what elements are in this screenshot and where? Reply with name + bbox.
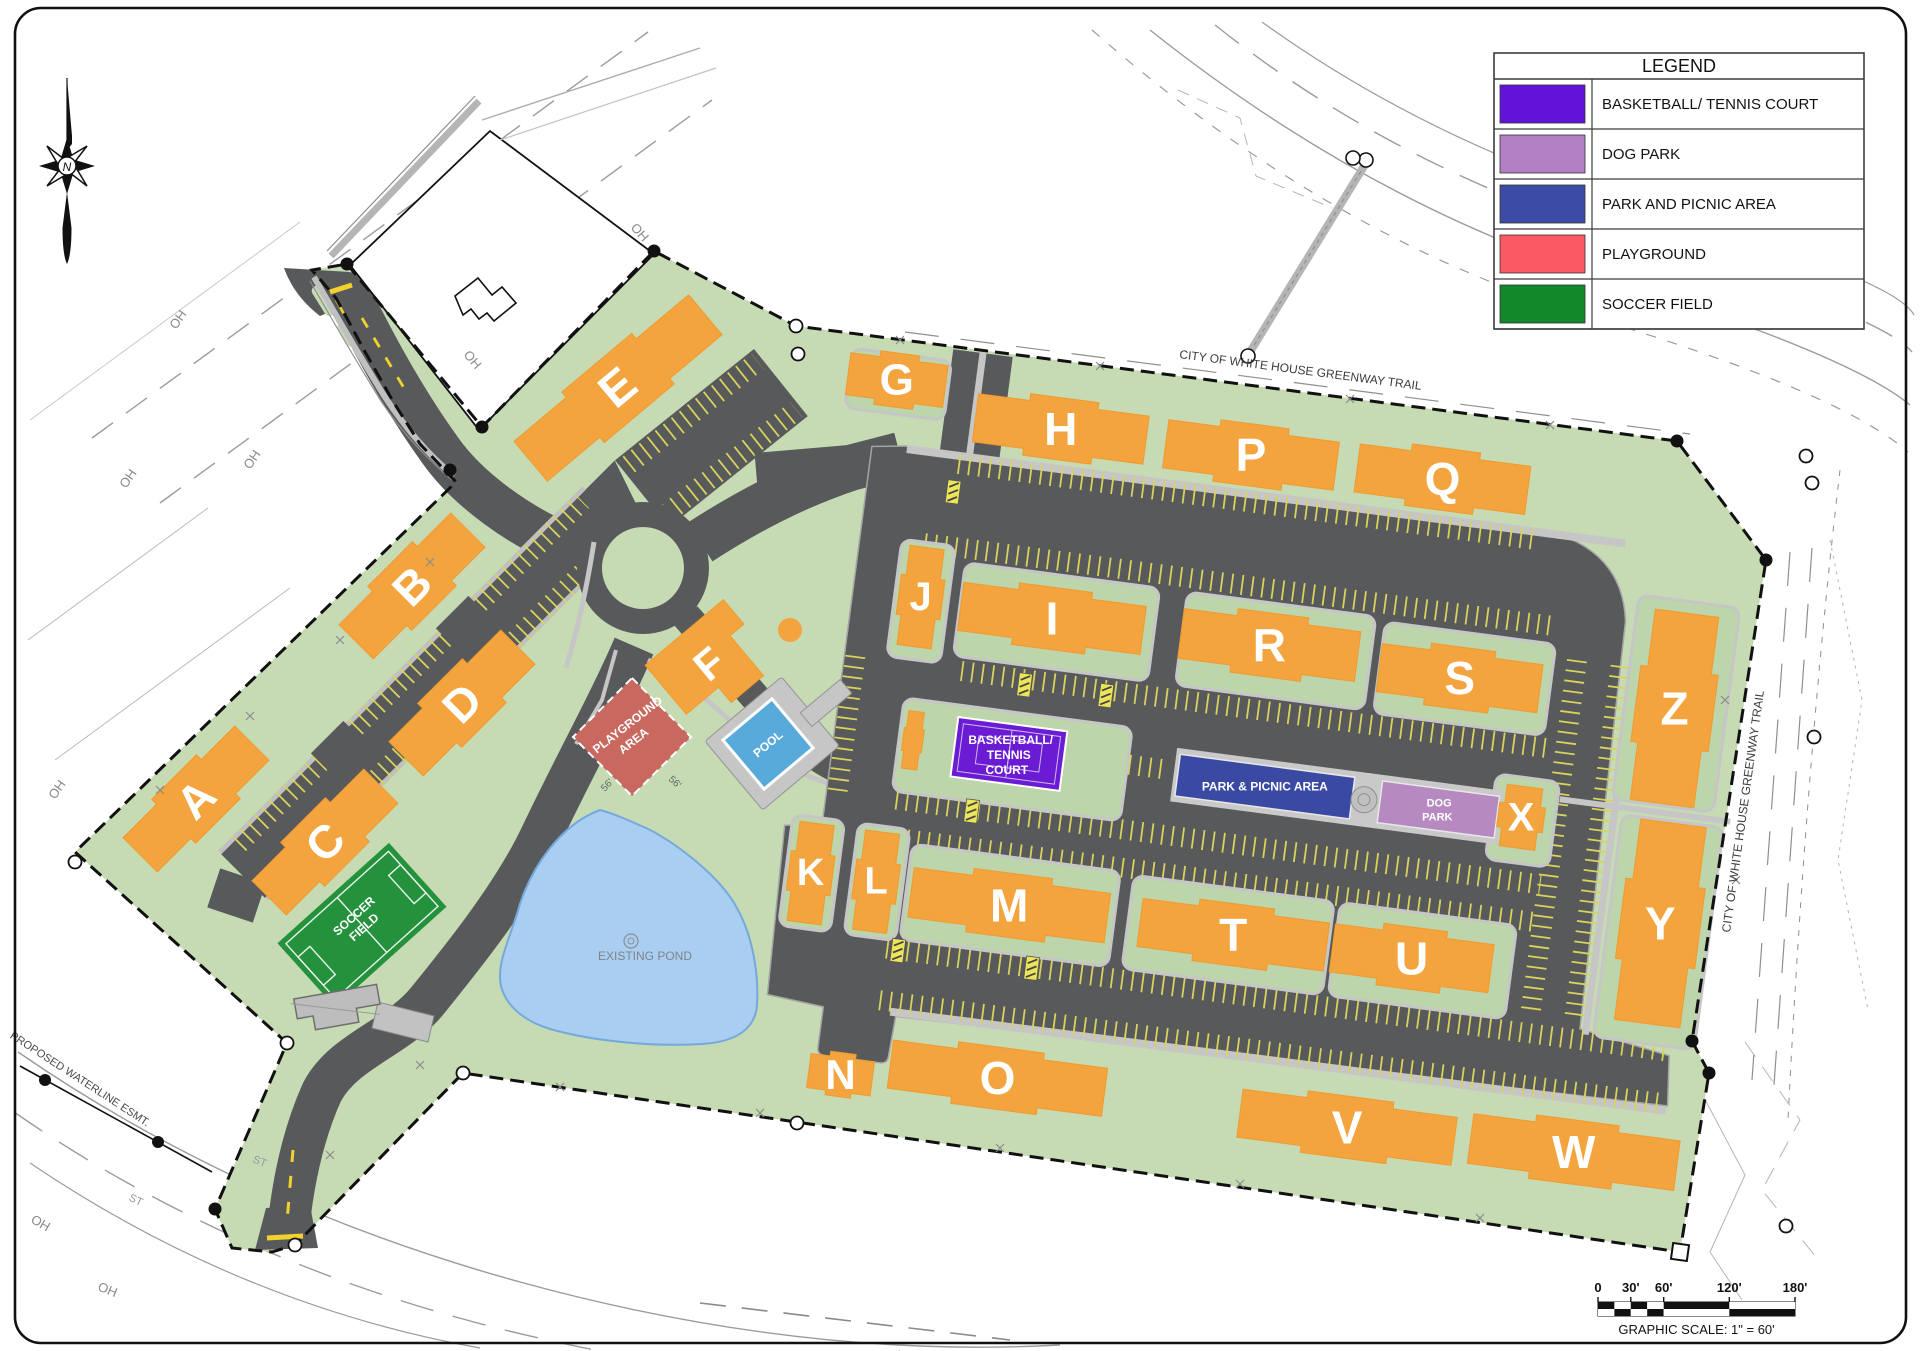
svg-text:EXISTING POND: EXISTING POND (598, 949, 692, 963)
svg-text:Y: Y (1645, 897, 1676, 949)
svg-text:U: U (1395, 932, 1428, 984)
svg-text:Q: Q (1425, 453, 1461, 505)
svg-text:PARK & PICNIC AREA: PARK & PICNIC AREA (1202, 780, 1328, 794)
svg-text:V: V (1332, 1101, 1363, 1153)
svg-text:PLAYGROUND: PLAYGROUND (1602, 246, 1706, 263)
svg-text:W: W (1552, 1126, 1596, 1178)
svg-text:PARK: PARK (1422, 811, 1452, 823)
svg-text:BASKETBALL/: BASKETBALL/ (968, 733, 1053, 747)
svg-text:SOCCER FIELD: SOCCER FIELD (1602, 296, 1713, 313)
svg-text:GRAPHIC SCALE: 1" = 60': GRAPHIC SCALE: 1" = 60' (1618, 1322, 1774, 1337)
svg-text:X: X (1508, 795, 1535, 839)
svg-text:S: S (1444, 652, 1475, 704)
svg-text:COURT: COURT (985, 763, 1028, 777)
svg-text:J: J (910, 575, 932, 619)
svg-text:BASKETBALL/ TENNIS COURT: BASKETBALL/ TENNIS COURT (1602, 96, 1818, 113)
svg-text:120': 120' (1717, 1280, 1742, 1295)
svg-text:T: T (1219, 909, 1247, 961)
svg-text:N: N (825, 1051, 855, 1098)
svg-text:Z: Z (1660, 682, 1688, 734)
svg-text:LEGEND: LEGEND (1642, 56, 1716, 76)
svg-text:R: R (1253, 619, 1286, 671)
svg-text:30': 30' (1622, 1280, 1640, 1295)
svg-text:PARK AND PICNIC AREA: PARK AND PICNIC AREA (1602, 196, 1776, 213)
svg-text:60': 60' (1655, 1280, 1673, 1295)
svg-text:I: I (1046, 592, 1059, 644)
svg-text:M: M (990, 879, 1028, 931)
svg-text:L: L (864, 861, 887, 903)
svg-text:DOG PARK: DOG PARK (1602, 146, 1680, 163)
svg-text:O: O (980, 1052, 1016, 1104)
svg-text:G: G (880, 356, 914, 405)
svg-text:0: 0 (1594, 1280, 1601, 1295)
svg-text:P: P (1236, 429, 1267, 481)
svg-text:N: N (63, 160, 72, 174)
svg-text:K: K (797, 852, 825, 894)
svg-text:180': 180' (1783, 1280, 1808, 1295)
svg-text:H: H (1044, 403, 1077, 455)
svg-text:DOG: DOG (1427, 798, 1452, 810)
svg-text:TENNIS: TENNIS (987, 748, 1031, 762)
